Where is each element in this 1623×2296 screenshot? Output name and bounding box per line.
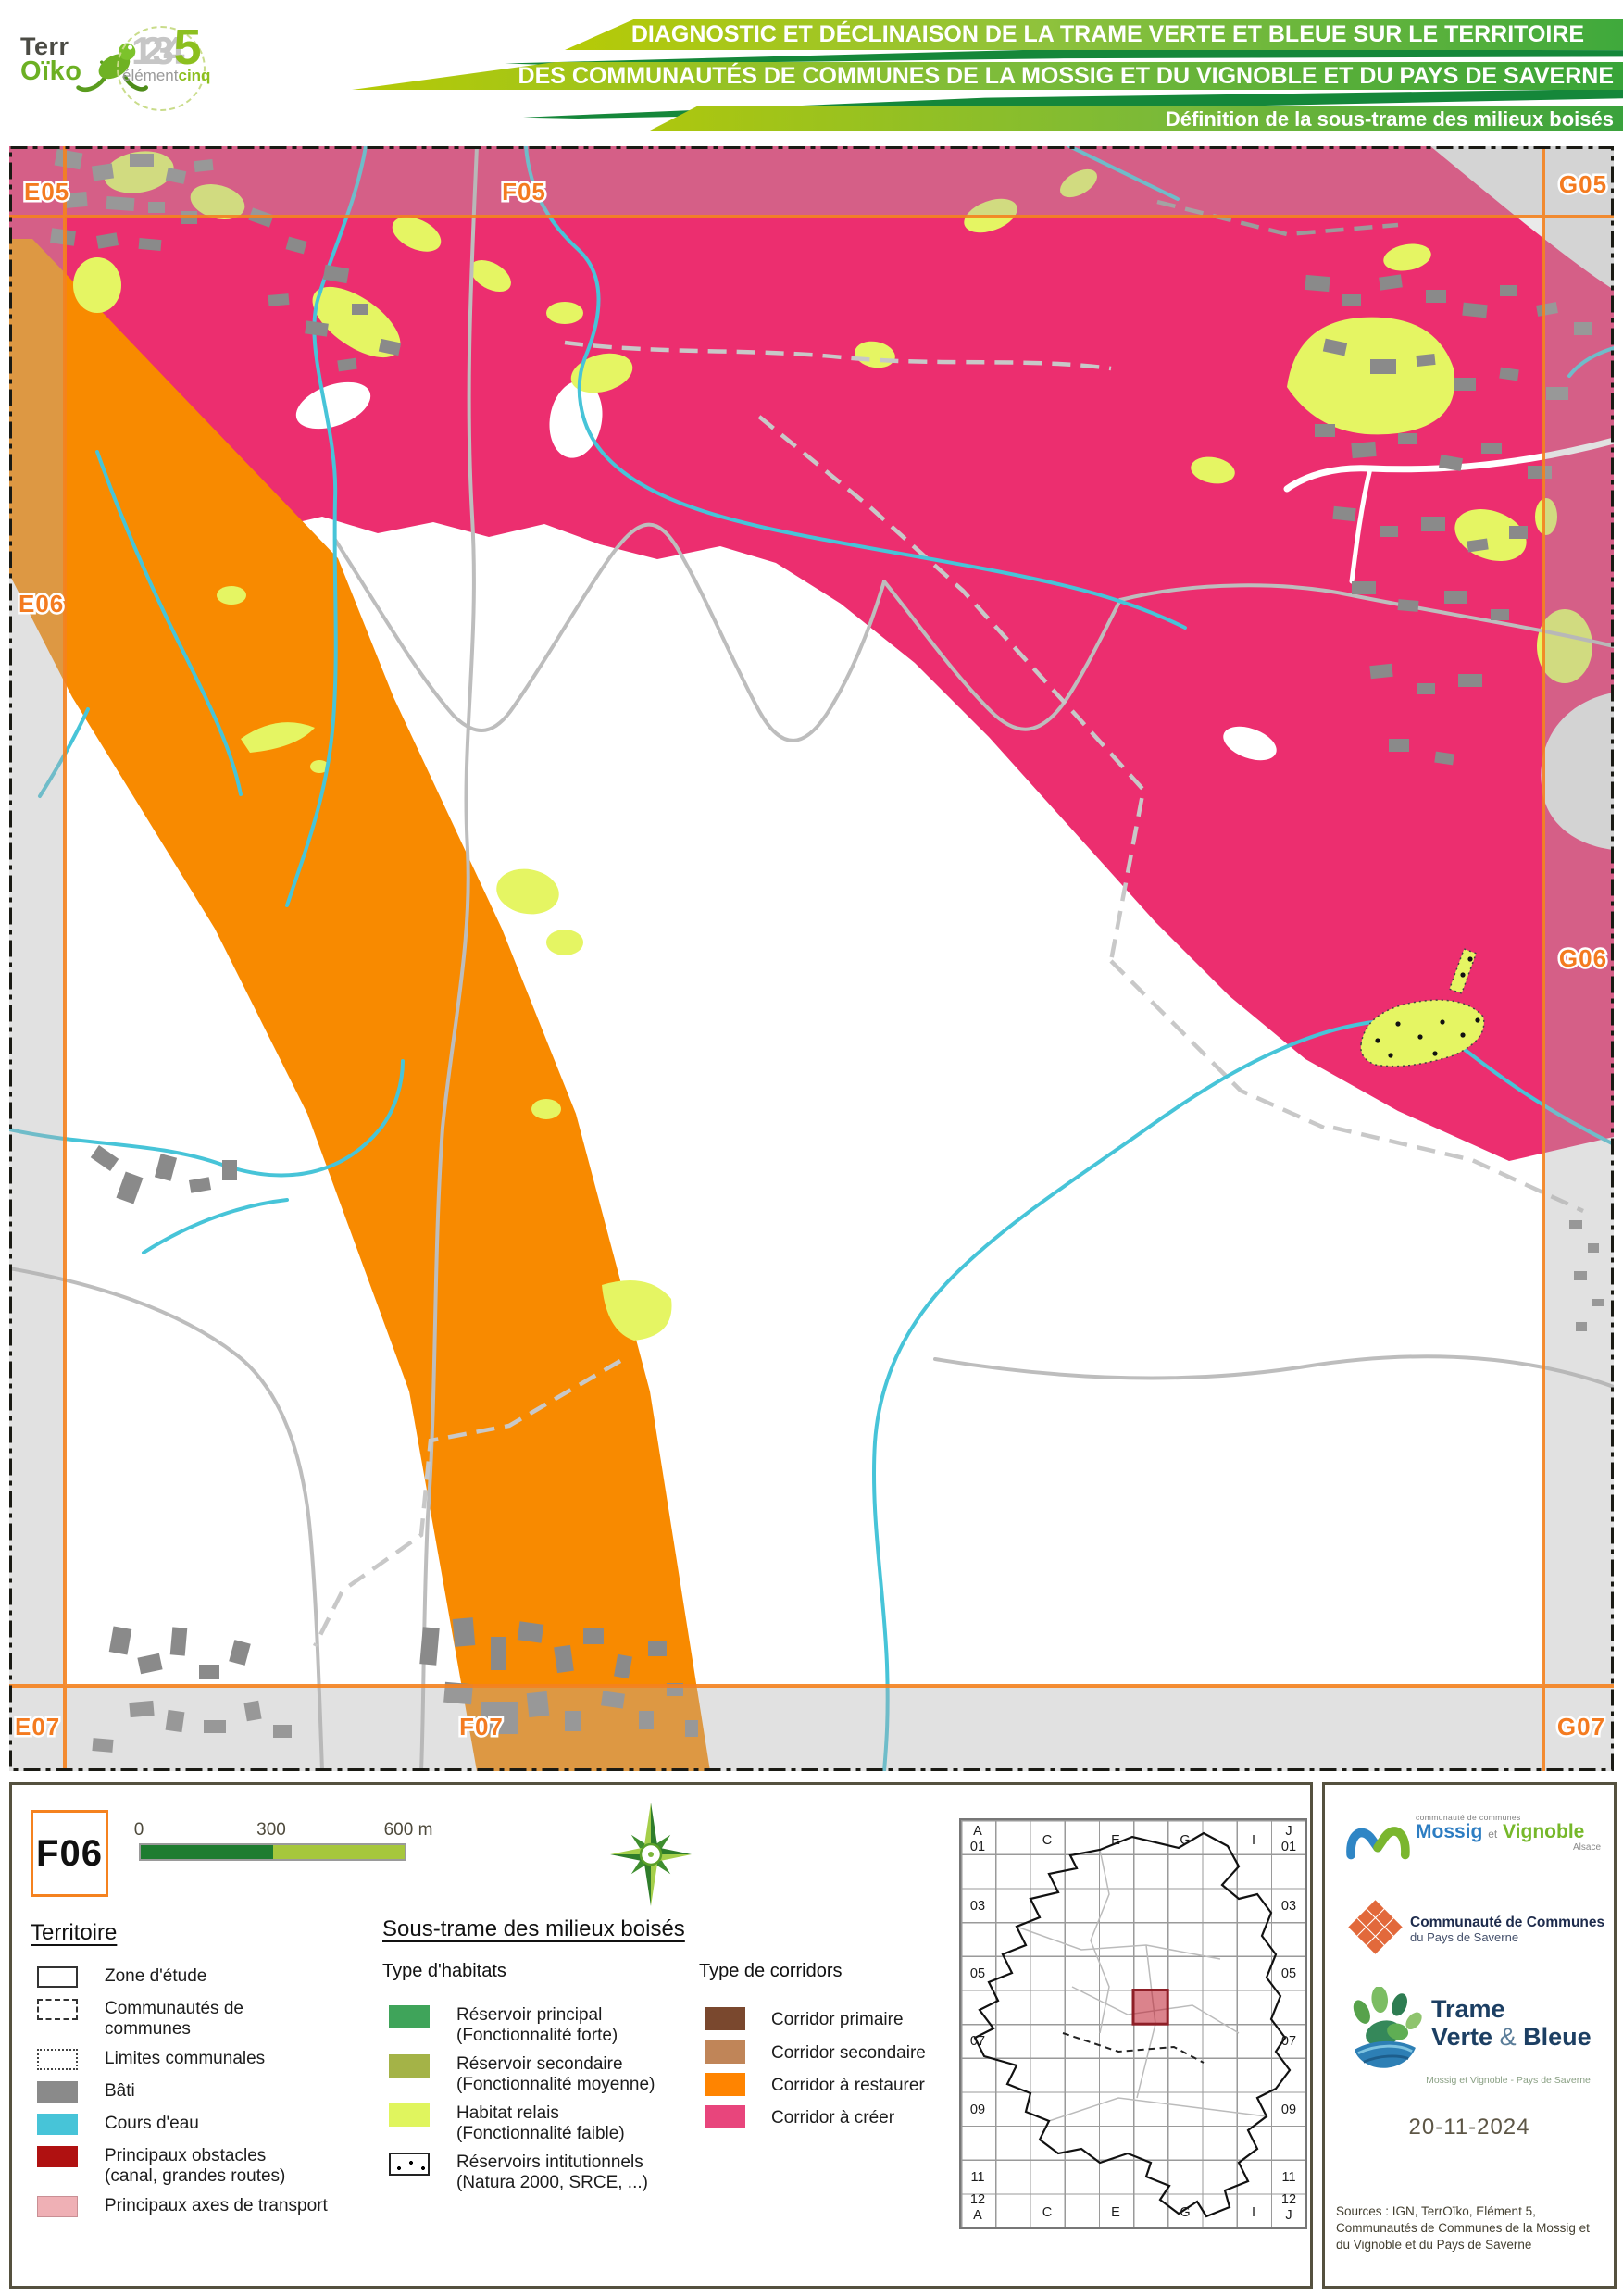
soustrame-title: Sous-trame des milieux boisés <box>382 1916 685 1942</box>
map-document-page: Terr Oïko 12345 élémentcinq DIAGNOSTIC E… <box>0 0 1623 2296</box>
grid-label-E05: E05 <box>24 178 69 206</box>
pays-saverne-logo-icon <box>1347 1900 1405 1957</box>
minimap-label: E <box>1111 1833 1120 1848</box>
minimap-label: 01 <box>970 1840 985 1854</box>
legend-label: Zone d'étude <box>105 1966 318 1987</box>
swatch-limites-communales <box>37 2049 78 2070</box>
locator-minimap: A 01 J 01 12 A 12 J 03 05 07 09 11 03 05… <box>959 1818 1307 2229</box>
minimap-label: C <box>1042 2205 1052 2220</box>
minimap-label: J <box>1285 1824 1292 1839</box>
swatch-reservoir-principal <box>389 2005 430 2028</box>
minimap-label: J <box>1285 2208 1292 2223</box>
swatch-bati <box>37 2081 78 2103</box>
title-bar-1: DIAGNOSTIC ET DÉCLINAISON DE LA TRAME VE… <box>565 19 1623 50</box>
mossig-vignoble-logo-icon <box>1345 1816 1410 1861</box>
saverne-name: Communauté de Communes <box>1410 1915 1609 1930</box>
minimap-current-page-highlight <box>1133 1990 1167 2025</box>
swatch-axes-transport <box>37 2196 78 2217</box>
scale-bar <box>139 1843 406 1861</box>
legend-label: Bâti <box>105 2081 327 2102</box>
tvb-logo-text: Trame Verte & Bleue <box>1431 1996 1592 2051</box>
corridors-title: Type de corridors <box>699 1961 843 1982</box>
minimap-label: G <box>1180 2205 1190 2220</box>
grid-label-F07: F07 <box>459 1713 504 1741</box>
grid-label-E06: E06 <box>19 590 64 618</box>
minimap-label: 09 <box>1281 2103 1296 2117</box>
map-frame: E05 F05 G05 E06 G06 E07 F07 G07 <box>9 146 1614 1771</box>
grid-label-F05: F05 <box>502 178 546 206</box>
swatch-habitat-relais <box>389 2103 430 2127</box>
legend-label: Corridor à créer <box>771 2108 894 2128</box>
legend-sublabel: (Fonctionnalité moyenne) <box>456 2075 655 2095</box>
minimap-label: 09 <box>970 2103 985 2117</box>
tvb-line2a: Verte <box>1431 2023 1492 2051</box>
minimap-label: 01 <box>1281 1840 1296 1854</box>
tvb-line2b: Bleue <box>1523 2023 1592 2051</box>
title-bar-2: DES COMMUNAUTÉS DE COMMUNES DE LA MOSSIG… <box>352 62 1623 90</box>
legend-sublabel: (Fonctionnalité forte) <box>456 2026 618 2046</box>
habitats-title: Type d'habitats <box>382 1961 506 1982</box>
minimap-label: A <box>973 1824 982 1839</box>
legend-panel: F06 0 300 600 m Territoire Zone d'étude … <box>9 1782 1313 2289</box>
legend-label: Réservoirs intitutionnels <box>456 2152 648 2173</box>
swatch-corridor-secondaire <box>705 2040 745 2064</box>
page-code-box: F06 <box>31 1810 108 1897</box>
swatch-reservoir-secondaire <box>389 2054 430 2078</box>
minimap-label: 03 <box>970 1899 985 1914</box>
legend-label: Principaux axes de transport <box>105 2196 364 2216</box>
legend-label: Limites communales <box>105 2049 327 2069</box>
swatch-corridor-creer <box>705 2105 745 2128</box>
grid-label-G06: G06 <box>1559 944 1607 972</box>
scale-tick-600: 600 m <box>384 1820 433 1841</box>
mossig-et: et <box>1488 1828 1497 1841</box>
element-cinq-word-green: cinq <box>178 67 210 84</box>
minimap-label: I <box>1252 1833 1255 1848</box>
legend-label: Corridor à restaurer <box>771 2076 925 2096</box>
swatch-obstacles <box>37 2146 78 2167</box>
element-cinq-logo: 12345 élémentcinq <box>119 19 220 93</box>
grid-label-G07: G07 <box>1557 1713 1605 1741</box>
legend-label: Corridor secondaire <box>771 2043 926 2064</box>
map-date: 20-11-2024 <box>1325 2115 1614 2140</box>
minimap-label: 11 <box>1281 2170 1295 2185</box>
compass-rose-icon <box>600 1798 702 1911</box>
swatch-cours-eau <box>37 2114 78 2135</box>
legend-label: Corridor primaire <box>771 2010 904 2030</box>
element-cinq-word: élément <box>122 67 178 84</box>
minimap-label: 03 <box>1281 1899 1296 1914</box>
legend-label: Cours d'eau <box>105 2114 327 2134</box>
grid-label-E07: E07 <box>15 1713 60 1741</box>
tvb-logo-icon <box>1345 1987 1427 2072</box>
title-bar-3-subtitle: Définition de la sous-trame des milieux … <box>648 106 1623 131</box>
swatch-reservoirs-institutionnels <box>389 2152 430 2176</box>
saverne-sub: du Pays de Saverne <box>1410 1930 1609 1944</box>
pays-saverne-logo-text: Communauté de Communes du Pays de Savern… <box>1410 1915 1609 1944</box>
minimap-label: I <box>1252 2205 1255 2220</box>
vignoble-name: Vignoble <box>1503 1821 1584 1842</box>
tvb-line1: Trame <box>1431 1996 1592 2024</box>
territoire-title: Territoire <box>31 1920 117 1946</box>
tvb-subtitle: Mossig et Vignoble - Pays de Saverne <box>1406 2075 1610 2086</box>
terroiko-logo: Terr Oïko <box>20 35 131 102</box>
swatch-communautes-communes <box>37 1999 78 2020</box>
credits-panel: communauté de communes Mossig et Vignobl… <box>1322 1782 1617 2289</box>
map-canvas: E05 F05 G05 E06 G06 E07 F07 G07 <box>9 146 1614 1771</box>
legend-sublabel: (Fonctionnalité faible) <box>456 2124 625 2144</box>
minimap-label: 05 <box>1281 1966 1296 1981</box>
minimap-label: 07 <box>970 2034 985 2049</box>
alsace-text: Alsace <box>1416 1842 1601 1853</box>
legend-label: Réservoir principal <box>456 2005 618 2026</box>
minimap-label: 07 <box>1281 2034 1296 2049</box>
minimap-label: E <box>1111 2205 1120 2220</box>
legend-label: Réservoir secondaire <box>456 2054 655 2075</box>
swatch-corridor-primaire <box>705 2007 745 2030</box>
legend-label: Habitat relais <box>456 2103 625 2124</box>
scale-tick-300: 300 <box>256 1820 286 1841</box>
mossig-name: Mossig <box>1416 1821 1482 1842</box>
legend-sublabel: (Natura 2000, SRCE, ...) <box>456 2173 648 2193</box>
legend-label: Communautés de communes <box>105 1999 262 2040</box>
minimap-label: A <box>973 2208 982 2223</box>
minimap-label: 05 <box>970 1966 985 1981</box>
page-code: F06 <box>36 1833 103 1875</box>
minimap-label: C <box>1042 1833 1052 1848</box>
minimap-label: G <box>1180 1833 1190 1848</box>
element-cinq-numbers: 1234 <box>131 29 173 72</box>
scale-tick-0: 0 <box>134 1820 144 1841</box>
swatch-corridor-restaurer <box>705 2073 745 2096</box>
legend-label: Principaux obstacles (canal, grandes rou… <box>105 2146 313 2188</box>
sources-text: Sources : IGN, TerrOïko, Elément 5, Comm… <box>1336 2203 1604 2252</box>
tvb-amp: & <box>1500 2023 1517 2051</box>
swatch-zone-etude <box>37 1966 78 1988</box>
minimap-label: 12 <box>970 2192 985 2207</box>
grid-label-G05: G05 <box>1559 170 1607 198</box>
minimap-label: 11 <box>970 2170 984 2185</box>
minimap-label: 12 <box>1281 2192 1296 2207</box>
mossig-vignoble-logo-text: communauté de communes Mossig et Vignobl… <box>1416 1813 1601 1853</box>
